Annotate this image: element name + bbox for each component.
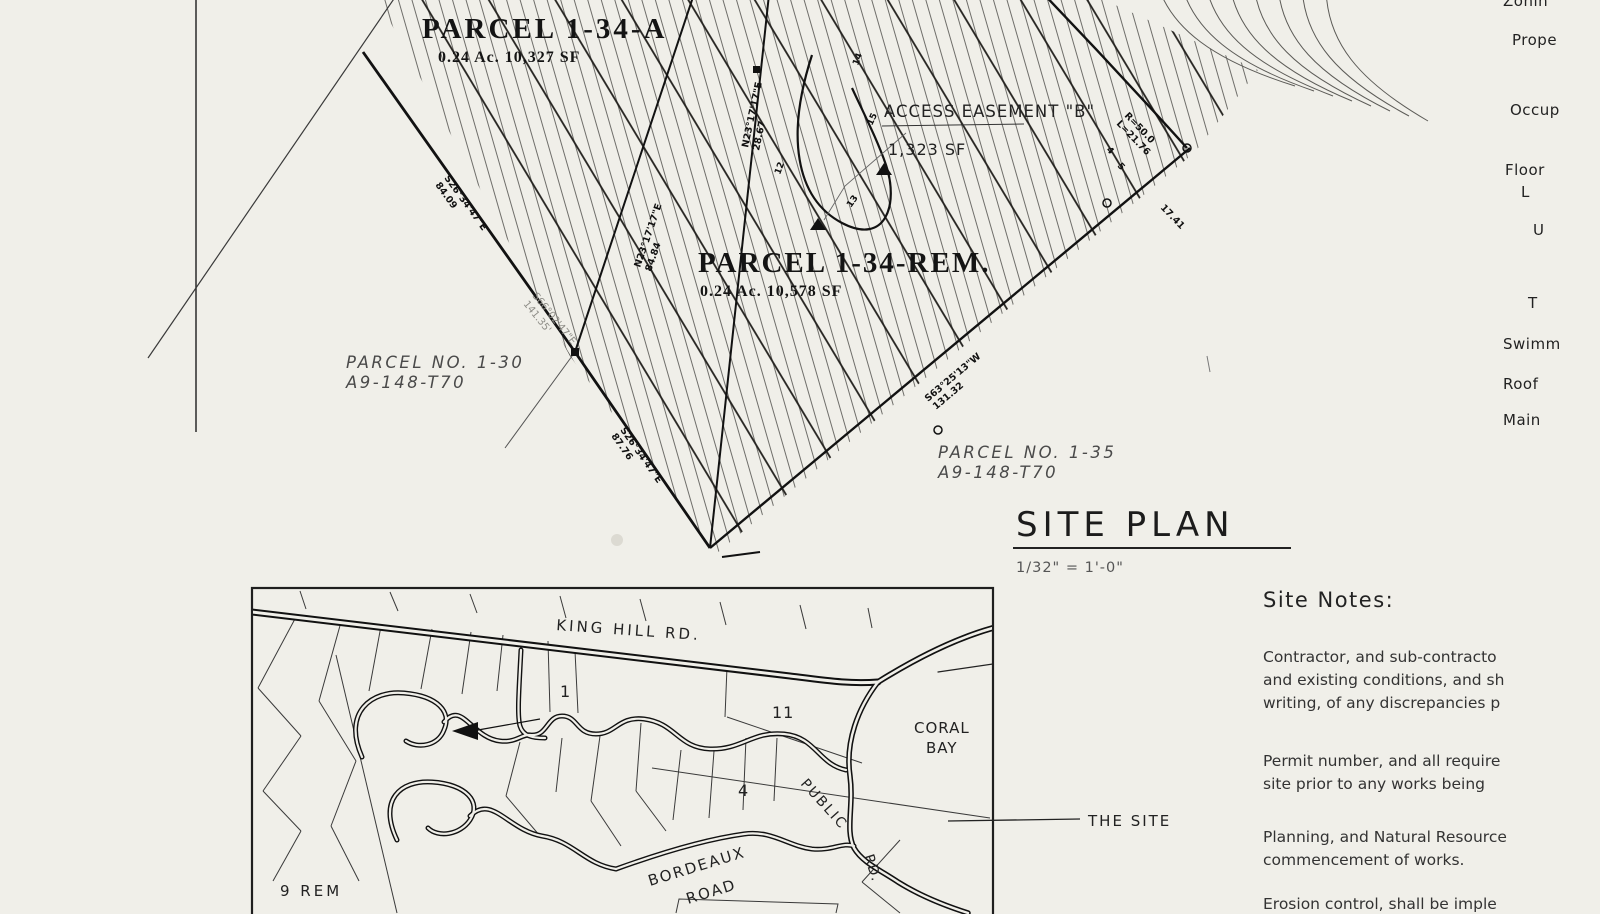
- public-road: [849, 682, 968, 913]
- location-map: KING HILL RD. 1 11 4 9 REM CORAL BAY BOR…: [252, 591, 993, 913]
- parcel-rem-area: 0.24 Ac. 10,578 SF: [700, 283, 842, 300]
- parcel-a-title: PARCEL 1-34-A: [422, 13, 667, 45]
- site-notes-heading: Site Notes:: [1263, 588, 1394, 612]
- parcel-30-ref: A9-148-T70: [345, 373, 466, 392]
- spec-label-zoning: Zonin: [1503, 0, 1548, 10]
- corner-square-marker: [753, 66, 760, 73]
- coral-bay-label: CORAL: [914, 719, 970, 737]
- parcel-35-ref: A9-148-T70: [937, 463, 1058, 482]
- parcel-a-area: 0.24 Ac. 10,327 SF: [438, 49, 580, 66]
- public-road-label: PUBLIC: [797, 776, 850, 833]
- lot-1-label: 1: [560, 682, 570, 701]
- public-road-label2: RD.: [860, 852, 884, 884]
- drawing-scale: 1/32" = 1'-0": [1016, 560, 1124, 576]
- note-line: commencement of works.: [1263, 851, 1464, 869]
- king-hill-road-label: KING HILL RD.: [556, 616, 702, 644]
- spec-label-main: Main: [1503, 411, 1541, 429]
- spec-label-t: T: [1528, 294, 1538, 312]
- scan-smudge: [611, 534, 623, 546]
- drawing-sheet: PARCEL 1-34-A 0.24 Ac. 10,327 SF PARCEL …: [0, 0, 1600, 914]
- spec-label-u: U: [1533, 221, 1544, 239]
- note-line: Contractor, and sub-contracto: [1263, 648, 1497, 666]
- note-line: and existing conditions, and sh: [1263, 671, 1504, 689]
- distance-label: 17.41: [1158, 202, 1187, 231]
- note-line: Erosion control, shall be imple: [1263, 895, 1497, 913]
- coral-bay-label2: BAY: [926, 739, 958, 757]
- spec-label-proposed: Prope: [1512, 31, 1557, 49]
- easement-area: 1,323 SF: [888, 140, 966, 159]
- note-line: Planning, and Natural Resource: [1263, 828, 1507, 846]
- note-line: site prior to any works being: [1263, 775, 1485, 793]
- spec-label-occupancy: Occup: [1510, 101, 1560, 119]
- parcel-rem-title: PARCEL 1-34-REM.: [698, 247, 990, 279]
- spec-label-roof: Roof: [1503, 375, 1538, 393]
- the-site-label: THE SITE: [1087, 812, 1171, 830]
- tip-tick-mark: [722, 552, 760, 557]
- lot-11-label: 11: [772, 703, 794, 722]
- drawing-title: SITE PLAN: [1016, 505, 1235, 545]
- spec-label-floor: Floor: [1505, 161, 1545, 179]
- lot-9-rem-label: 9 REM: [280, 882, 342, 900]
- spec-label-l: L: [1521, 183, 1530, 201]
- easement-label: ACCESS EASEMENT "B": [884, 102, 1095, 121]
- note-line: Permit number, and all require: [1263, 752, 1500, 770]
- the-site-leader-line: [948, 819, 1080, 821]
- bordeaux-road-label2: ROAD: [684, 875, 739, 907]
- parcel-30-label: PARCEL NO. 1-30: [346, 353, 524, 372]
- stray-mark: [1207, 356, 1210, 372]
- parcel-35-label: PARCEL NO. 1-35: [938, 443, 1116, 462]
- lot-4-label: 4: [738, 781, 748, 800]
- contour-hatch: [150, 0, 1450, 600]
- corner-circle-marker: [934, 426, 942, 434]
- note-line: writing, of any discrepancies p: [1263, 694, 1500, 712]
- spec-label-swimming: Swimm: [1503, 335, 1561, 353]
- corner-square-marker: [571, 348, 579, 356]
- map-roads: [252, 612, 993, 913]
